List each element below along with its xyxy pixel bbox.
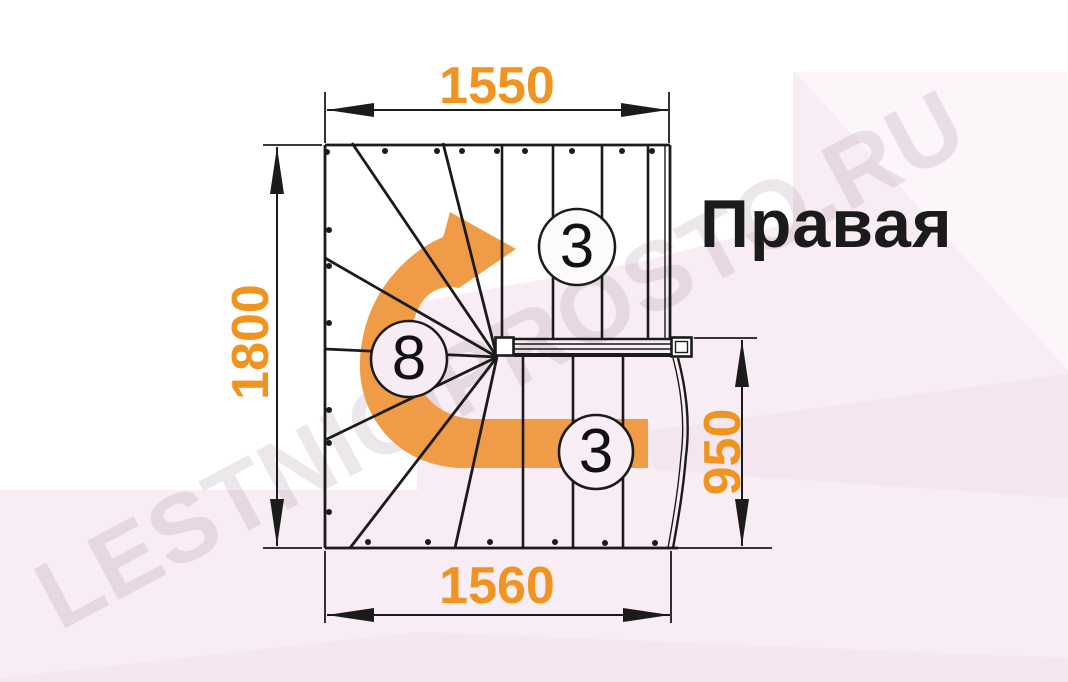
dimension-lines xyxy=(270,103,749,622)
dimension-left-height: 1800 xyxy=(225,222,277,462)
dimension-bottom-width: 1560 xyxy=(377,560,617,612)
extension-lines xyxy=(263,92,772,623)
step-count-winders: 8 xyxy=(369,319,449,399)
staircase-plan-diagram: LESTNICIPROSTO.RU xyxy=(0,0,1068,682)
orientation-label: Правая xyxy=(700,190,1030,258)
step-count-upper-flight: 3 xyxy=(537,207,617,287)
dimension-right-height: 950 xyxy=(697,332,749,572)
newel-post-left xyxy=(496,338,514,356)
lower-flight-curved-edge xyxy=(668,358,688,548)
newel-post-right xyxy=(672,338,692,357)
step-count-lower-flight: 3 xyxy=(556,412,636,492)
dimension-top-width: 1550 xyxy=(377,60,617,112)
landing-beam xyxy=(496,338,692,357)
